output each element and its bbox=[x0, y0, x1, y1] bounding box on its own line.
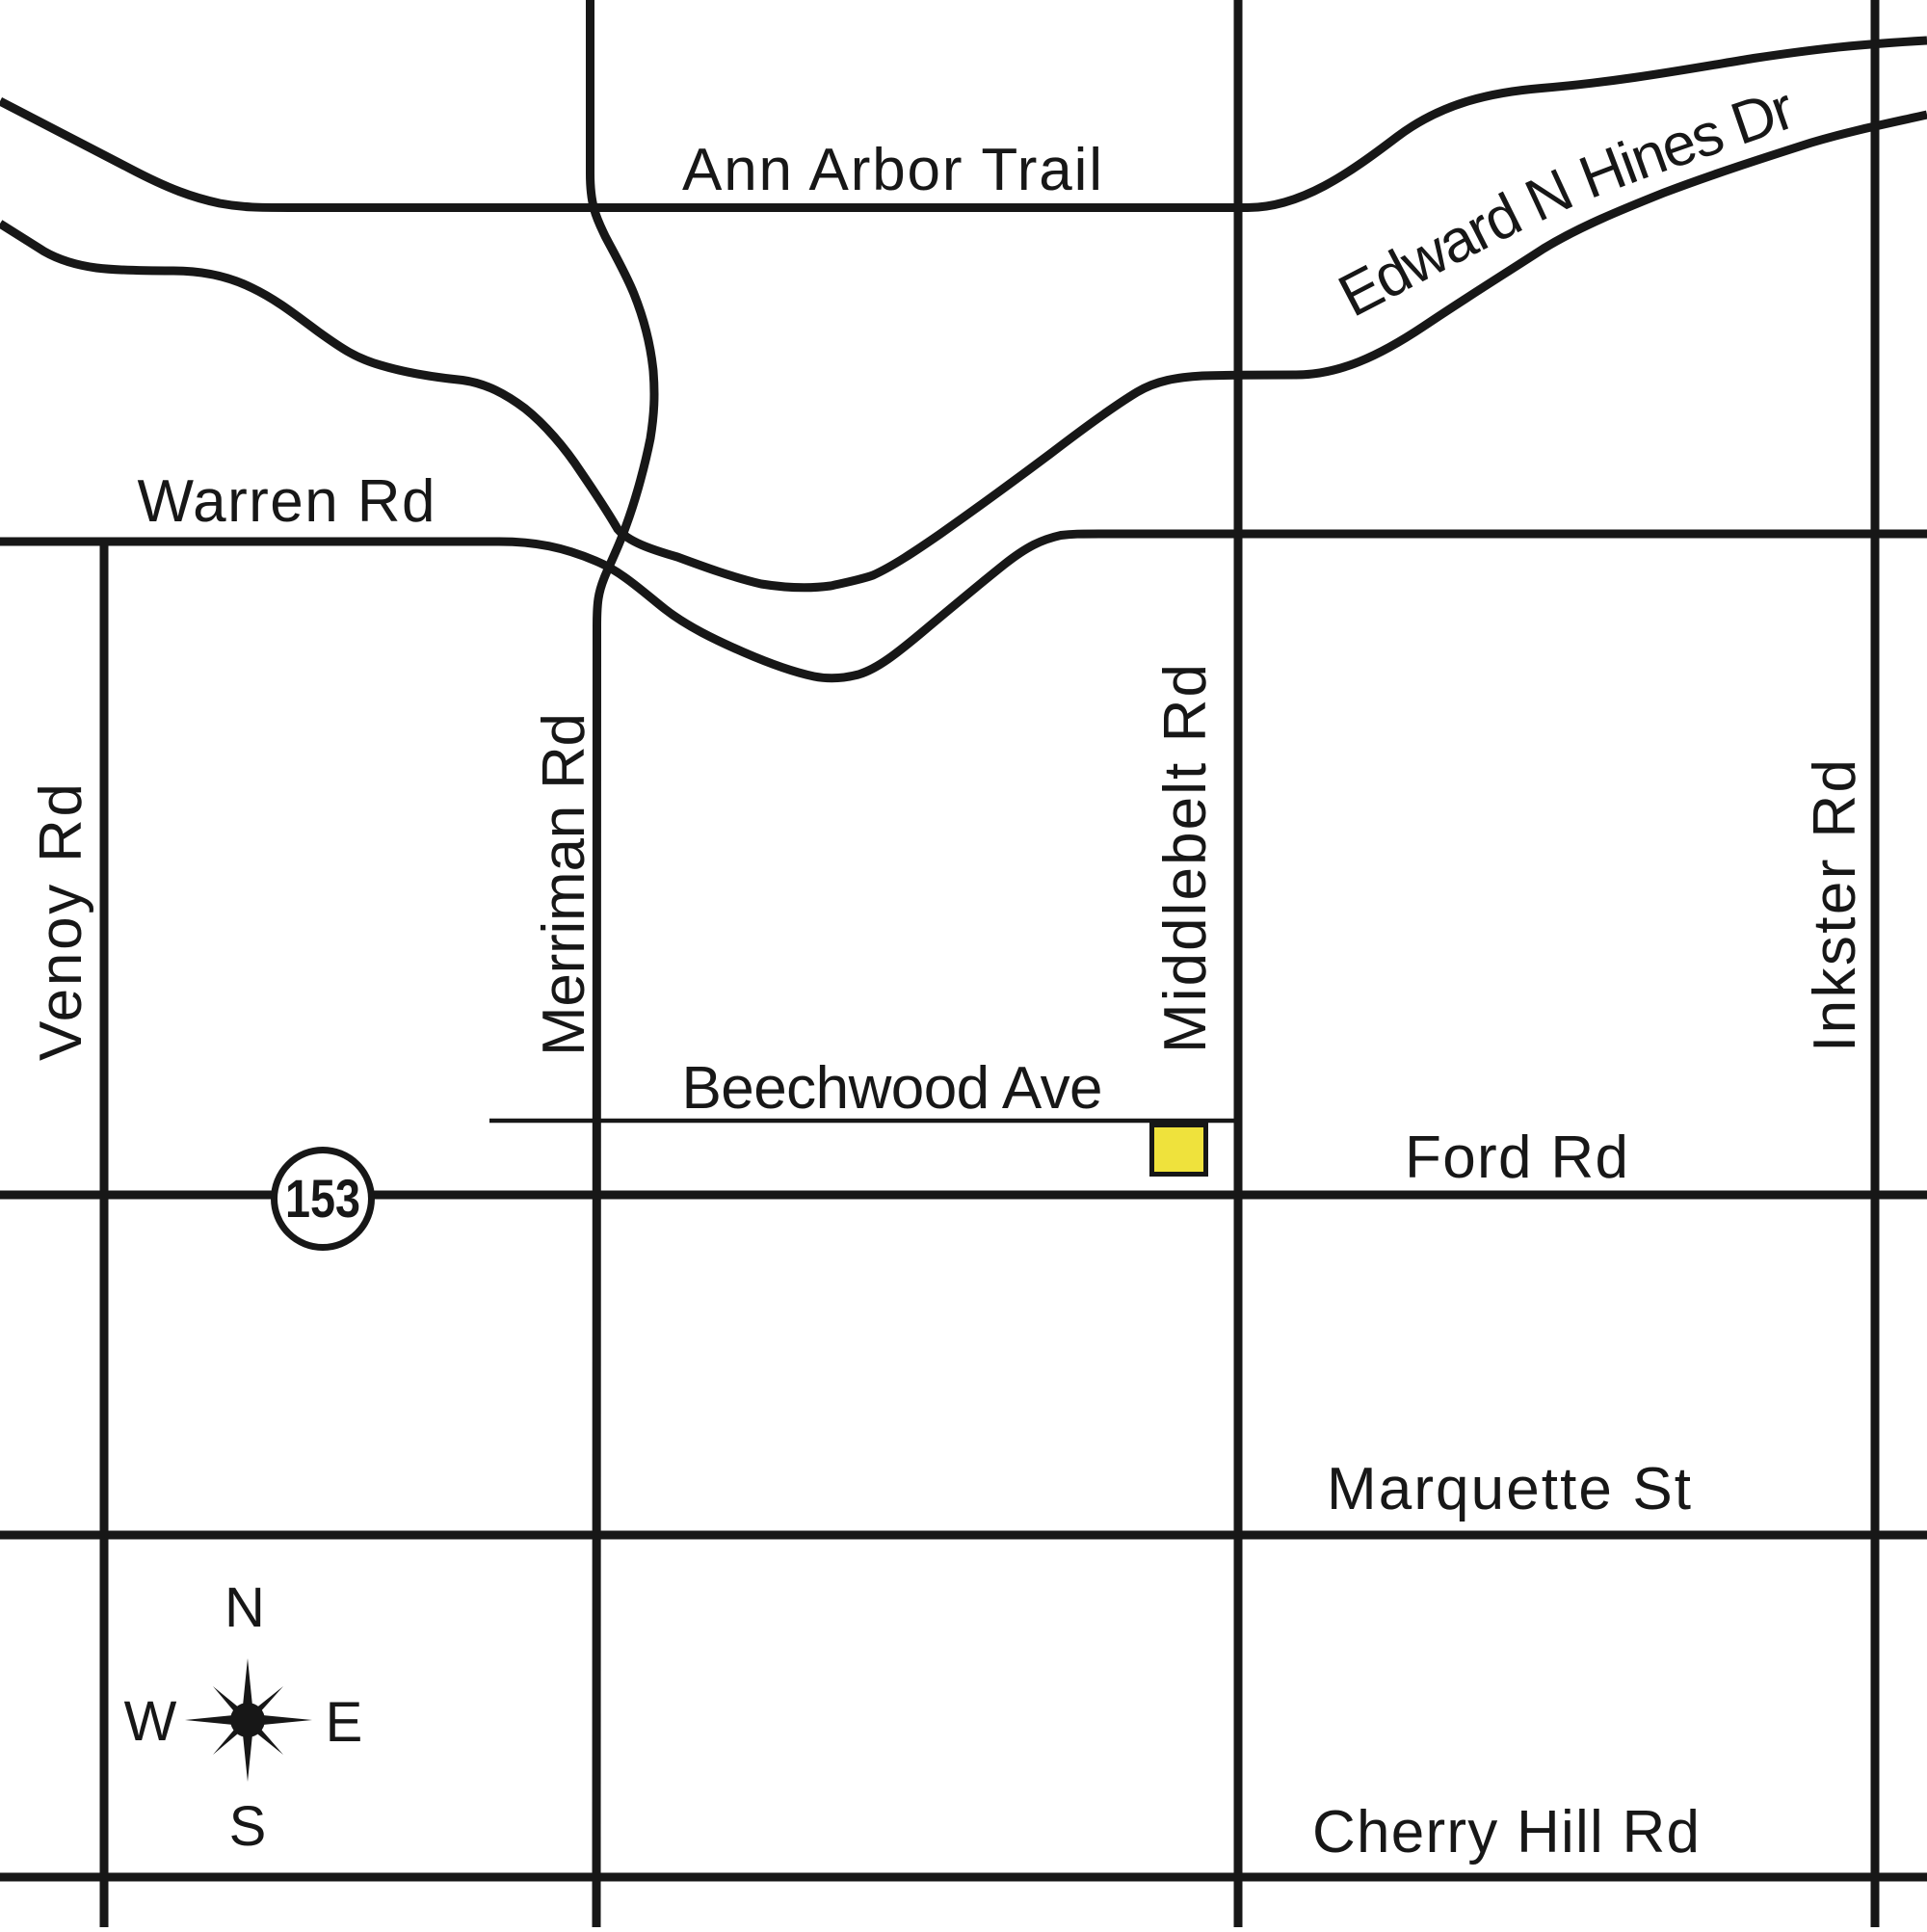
svg-text:Venoy Rd: Venoy Rd bbox=[28, 783, 94, 1061]
svg-text:Marquette St: Marquette St bbox=[1327, 1456, 1691, 1522]
svg-text:Middlebelt Rd: Middlebelt Rd bbox=[1152, 664, 1219, 1053]
svg-text:153: 153 bbox=[285, 1168, 360, 1229]
svg-text:W: W bbox=[124, 1690, 177, 1753]
svg-text:Beechwood Ave: Beechwood Ave bbox=[682, 1055, 1103, 1122]
svg-text:Cherry Hill Rd: Cherry Hill Rd bbox=[1312, 1799, 1700, 1866]
svg-text:Inkster Rd: Inkster Rd bbox=[1802, 759, 1868, 1052]
svg-text:E: E bbox=[326, 1691, 363, 1754]
svg-text:Merriman Rd: Merriman Rd bbox=[531, 713, 597, 1056]
svg-text:Ford Rd: Ford Rd bbox=[1405, 1125, 1628, 1191]
svg-text:N: N bbox=[224, 1576, 265, 1639]
svg-text:S: S bbox=[229, 1795, 267, 1858]
svg-text:Ann Arbor Trail: Ann Arbor Trail bbox=[682, 137, 1102, 203]
svg-text:Warren Rd: Warren Rd bbox=[138, 468, 436, 535]
